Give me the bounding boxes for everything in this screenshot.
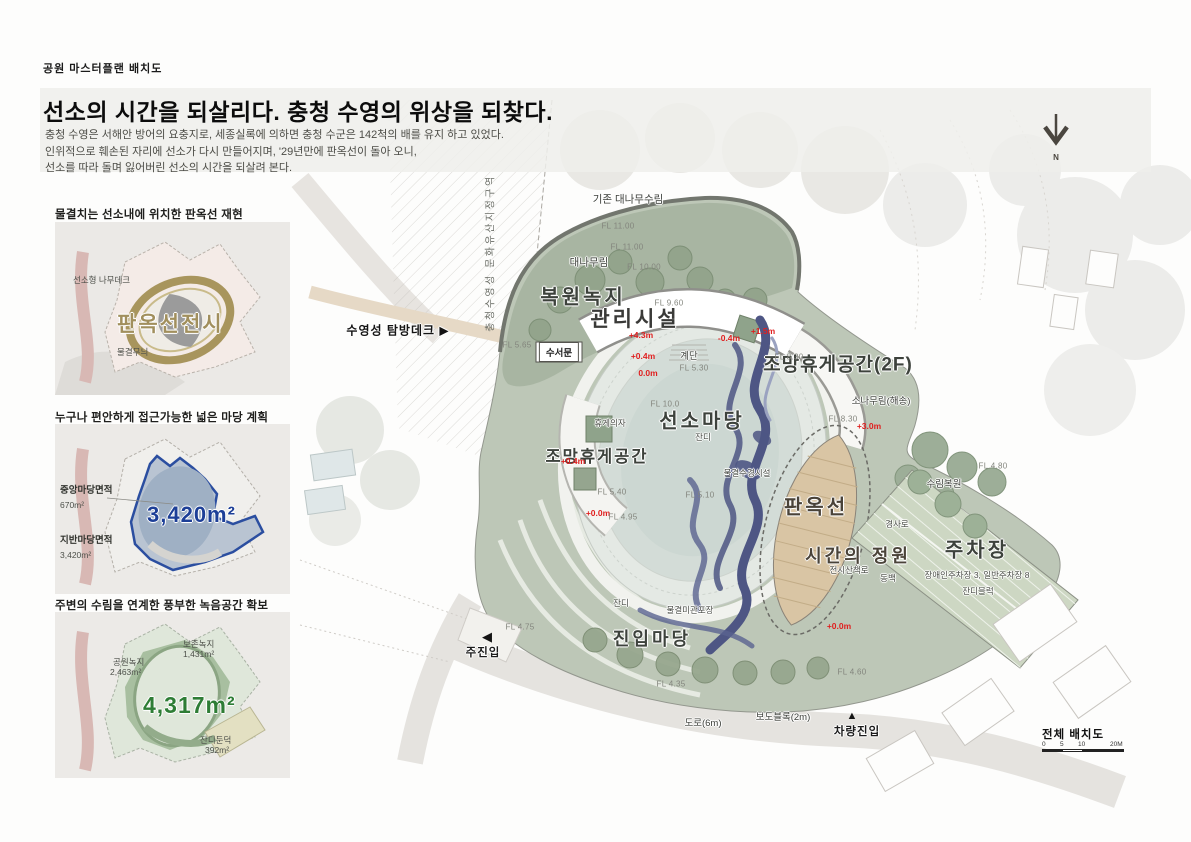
plan-label-seonso-madang: 선소마당 xyxy=(659,405,745,434)
plan-label-fl480: FL 4.80 xyxy=(979,462,1008,471)
plan-label-camellia: 동백 xyxy=(880,572,896,584)
panel-panokseon-exhibit: 선소형 나무데크 판옥선전시 물결무늬 xyxy=(55,222,290,395)
panel3-preserve-value: 1,431m² xyxy=(183,649,214,659)
plan-label-wave-waterfeature: 물결수경시설 xyxy=(724,467,771,479)
panel2-center-title: 중앙마당면적 xyxy=(60,482,112,496)
plan-label-sidewalk-2m: 보도블록(2m) xyxy=(756,709,810,723)
scale-seg-1 xyxy=(1042,749,1062,752)
north-label: N xyxy=(1040,153,1072,162)
panel3-park-value: 2,463m² xyxy=(110,667,141,677)
plan-label-wave-paving: 물결미관포장 xyxy=(667,604,714,616)
panel2-ground-value: 3,420m² xyxy=(60,550,91,560)
plan-label-stairs: 계단 xyxy=(680,348,697,362)
plan-level-plus30: +3.0m xyxy=(857,421,881,431)
plan-label-pine-forest: 소나무림(해송) xyxy=(852,393,911,407)
plan-label-lawn-b: 잔디 xyxy=(613,597,629,609)
north-arrow: N xyxy=(1040,112,1072,162)
plan-label-lawn-a: 잔디 xyxy=(695,431,711,443)
plan-level-plus15: +1.5m xyxy=(751,326,775,336)
plan-label-vehicle-entry: 차량진입 xyxy=(834,723,880,739)
panel3-mound-value: 392m² xyxy=(205,745,229,755)
intro-line-1: 충청 수영은 서해안 방어의 요충지로, 세종실록에 의하면 충청 수군은 14… xyxy=(45,127,504,144)
masterplan-board: 공원 마스터플랜 배치도 선소의 시간을 되살리다. 충청 수영의 위상을 되찾… xyxy=(0,0,1191,842)
plan-label-fl475: FL 4.75 xyxy=(506,623,535,632)
intro-paragraph: 충청 수영은 서해안 방어의 요충지로, 세종실록에 의하면 충청 수군은 14… xyxy=(45,127,504,177)
legend: 전체 배치도 0 5 10 20M xyxy=(1042,726,1124,752)
north-arrow-icon xyxy=(1040,112,1072,150)
panel2-ground-title: 지반마당면적 xyxy=(60,532,112,546)
scale-tick-20: 20M xyxy=(1110,741,1123,748)
plan-label-fl460: FL 4.60 xyxy=(838,668,867,677)
plan-label-west-gate: 수서문 xyxy=(539,342,579,362)
scale-seg-3 xyxy=(1083,749,1124,752)
plan-label-fl540: FL 5.40 xyxy=(598,488,627,497)
plan-label-parking: 주차장 xyxy=(945,534,1009,563)
plan-label-tambang-deck: 수영성 탐방데크 ▶ xyxy=(346,322,449,339)
scale-tick-10: 10 xyxy=(1078,741,1085,748)
plan-label-parking-detail: 장애인주차장 3, 일반주차장 8 xyxy=(925,569,1030,581)
intro-line-3: 선소를 따라 돌며 잃어버린 선소의 시간을 되살려 본다. xyxy=(45,160,504,177)
plan-label-panokseon: 판옥선 xyxy=(784,491,848,520)
plan-label-fl510: FL 5.10 xyxy=(686,491,715,500)
plan-label-main-entry: 주진입 xyxy=(466,644,501,660)
scale-tick-0: 0 xyxy=(1042,741,1046,748)
panel2-big-value: 3,420m² xyxy=(147,502,236,528)
plan-label-heritage-zone: 충청수영성 문화유산지정구역 xyxy=(482,174,497,331)
panel2-center-value: 670m² xyxy=(60,500,84,510)
plan-label-grass-block: 잔디블럭 xyxy=(962,585,993,597)
plan-label-fl11b: FL 11.00 xyxy=(610,243,643,252)
plan-label-existing-bamboo: 기존 대나무수림 xyxy=(593,192,664,207)
panel3-big-value: 4,317m² xyxy=(143,692,236,719)
main-entry-arrow-icon: ◀ xyxy=(482,629,492,645)
plan-label-management-facility: 관리시설 xyxy=(590,303,679,333)
plan-label-entry-madang: 진입마당 xyxy=(613,625,691,651)
plan-label-fl11a: FL 11.00 xyxy=(601,222,634,231)
plan-level-00c: +0.0m xyxy=(827,621,851,631)
panel-green-space: 보존녹지 1,431m² 공원녹지 2,463m² 4,317m² 잔디둔덕 3… xyxy=(55,612,290,778)
panel1-deck-label: 선소형 나무데크 xyxy=(73,274,130,286)
vehicle-entry-arrow-icon: ▲ xyxy=(847,710,858,722)
board-eyebrow: 공원 마스터플랜 배치도 xyxy=(43,60,162,76)
plan-label-forest-restore: 수림복원 xyxy=(927,476,962,490)
legend-title: 전체 배치도 xyxy=(1042,726,1124,742)
plan-level-plus04b: +0.4m xyxy=(561,456,585,466)
scale-bar: 0 5 10 20M xyxy=(1042,749,1124,752)
intro-line-2: 인위적으로 훼손된 자리에 선소가 다시 만들어지며, '29년만에 판옥선이 … xyxy=(45,144,504,161)
panel2-caption: 누구나 편안하게 접근가능한 넓은 마당 계획 xyxy=(55,409,268,425)
plan-label-exhibit-walk: 전시산책로 xyxy=(829,564,868,576)
plan-level-minus04: -0.4m xyxy=(718,333,740,343)
page-title: 선소의 시간을 되살리다. 충청 수영의 위상을 되찾다. xyxy=(43,93,553,127)
plan-label-fl830a: FL 8.30 xyxy=(775,353,804,362)
plan-label-fl830b: FL 8.30 xyxy=(829,415,858,424)
panel1-main-label: 판옥선전시 xyxy=(117,308,224,338)
plan-level-plus43: +4.3m xyxy=(629,330,653,340)
panel1-caption: 물결치는 선소내에 위치한 판옥선 재현 xyxy=(55,206,243,222)
panel3-caption: 주변의 수림을 연계한 풍부한 녹음공간 확보 xyxy=(55,597,268,613)
plan-level-plus04a: +0.4m xyxy=(631,351,655,361)
plan-label-bamboo-forest: 대나무림 xyxy=(570,255,609,270)
plan-level-00a: 0.0m xyxy=(638,368,657,378)
plan-label-fl565: FL 5.65 xyxy=(503,341,532,350)
scale-tick-5: 5 xyxy=(1060,741,1064,748)
plan-label-fl495: FL 4.95 xyxy=(609,513,638,522)
plan-label-rest-chairs: 휴게의자 xyxy=(594,417,625,429)
panel1-wave-label: 물결무늬 xyxy=(117,346,148,358)
plan-label-fl530: FL 5.30 xyxy=(680,364,709,373)
plan-label-fl435: FL 4.35 xyxy=(657,680,686,689)
scale-seg-2 xyxy=(1062,749,1083,752)
plan-label-fl10: FL 10.00 xyxy=(627,263,661,272)
plan-level-00b: +0.0m xyxy=(586,508,610,518)
plan-label-road-6m: 도로(6m) xyxy=(684,715,721,729)
panel-madang-plan: 중앙마당면적 670m² 지반마당면적 3,420m² 3,420m² xyxy=(55,424,290,594)
plan-label-ramp: 경사로 xyxy=(885,518,908,530)
